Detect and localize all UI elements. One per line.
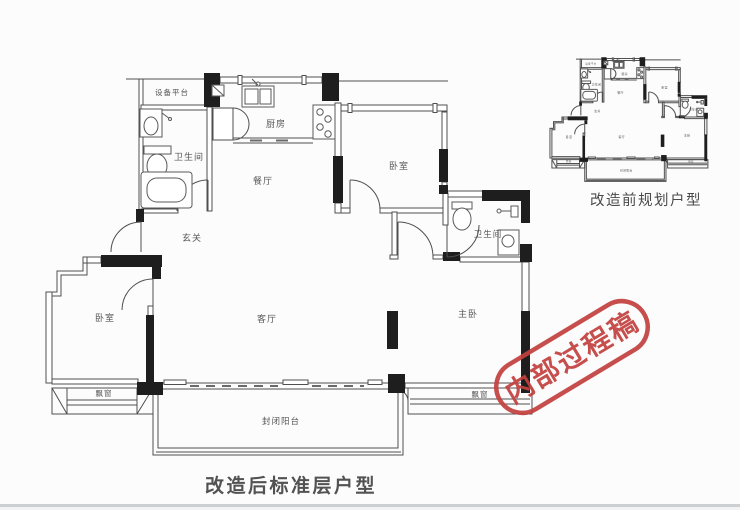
floorplan-page: 设备平台 卫生间 厨房 餐厅 卧室 卫生间 玄关 卧室 客厅 主卧 飘窗 飘窗 … [0, 0, 740, 510]
floorplan-image: 设备平台 卫生间 厨房 餐厅 卧室 卫生间 玄关 卧室 客厅 主卧 飘窗 飘窗 … [0, 0, 740, 510]
main-plan [46, 73, 532, 455]
bottom-edge-line [0, 504, 740, 507]
internal-draft-stamp: 内部过程稿 [487, 291, 658, 422]
mini-plan [550, 57, 708, 181]
main-plan-caption: 改造后标准层户型 [205, 474, 377, 497]
mini-plan-caption: 改造前规划户型 [590, 192, 702, 209]
